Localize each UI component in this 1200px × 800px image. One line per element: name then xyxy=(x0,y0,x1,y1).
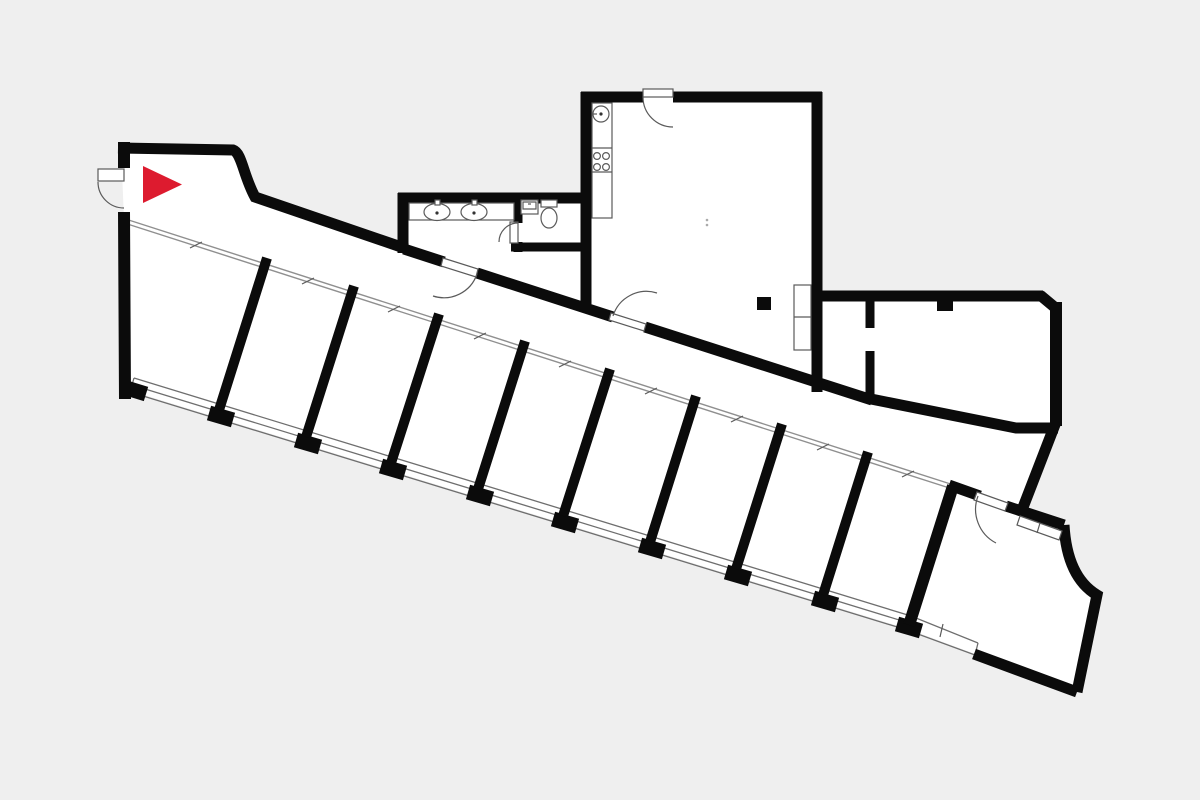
kitchen-counter xyxy=(592,103,612,218)
toilet-bowl-icon xyxy=(541,208,557,228)
floor-plan xyxy=(0,0,1200,800)
column xyxy=(757,297,771,310)
kitchen-door-leaf xyxy=(643,89,673,97)
toilet-tank-icon xyxy=(541,200,557,207)
column xyxy=(937,300,953,311)
ceiling-mark xyxy=(706,224,709,227)
entry-door-leaf xyxy=(98,169,124,181)
ceiling-mark xyxy=(706,219,709,222)
faucet-icon xyxy=(472,200,477,205)
floor-plan-canvas xyxy=(0,0,1200,800)
faucet-icon xyxy=(435,200,440,205)
wc-door-leaf xyxy=(510,222,518,243)
